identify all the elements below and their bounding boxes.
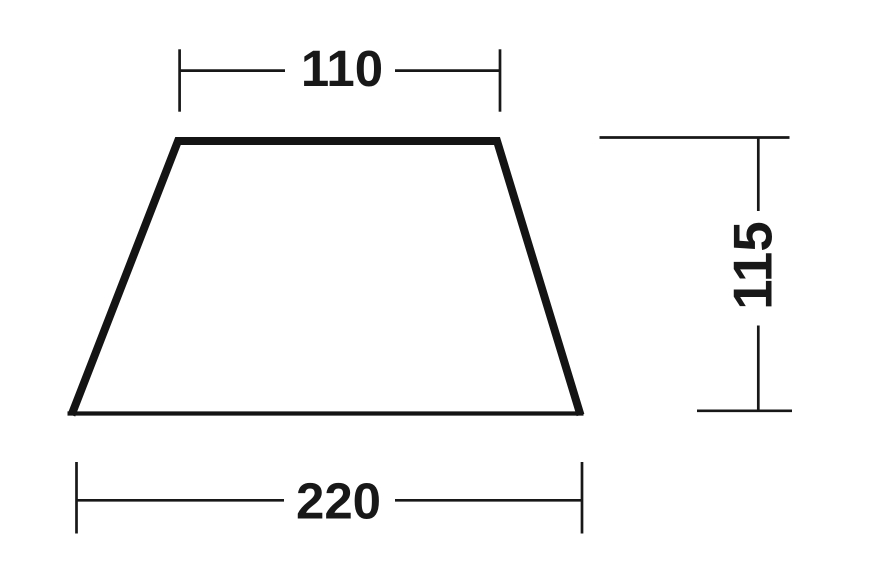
svg-text:110: 110 xyxy=(301,40,383,97)
svg-text:220: 220 xyxy=(296,473,381,530)
svg-text:115: 115 xyxy=(722,221,784,310)
